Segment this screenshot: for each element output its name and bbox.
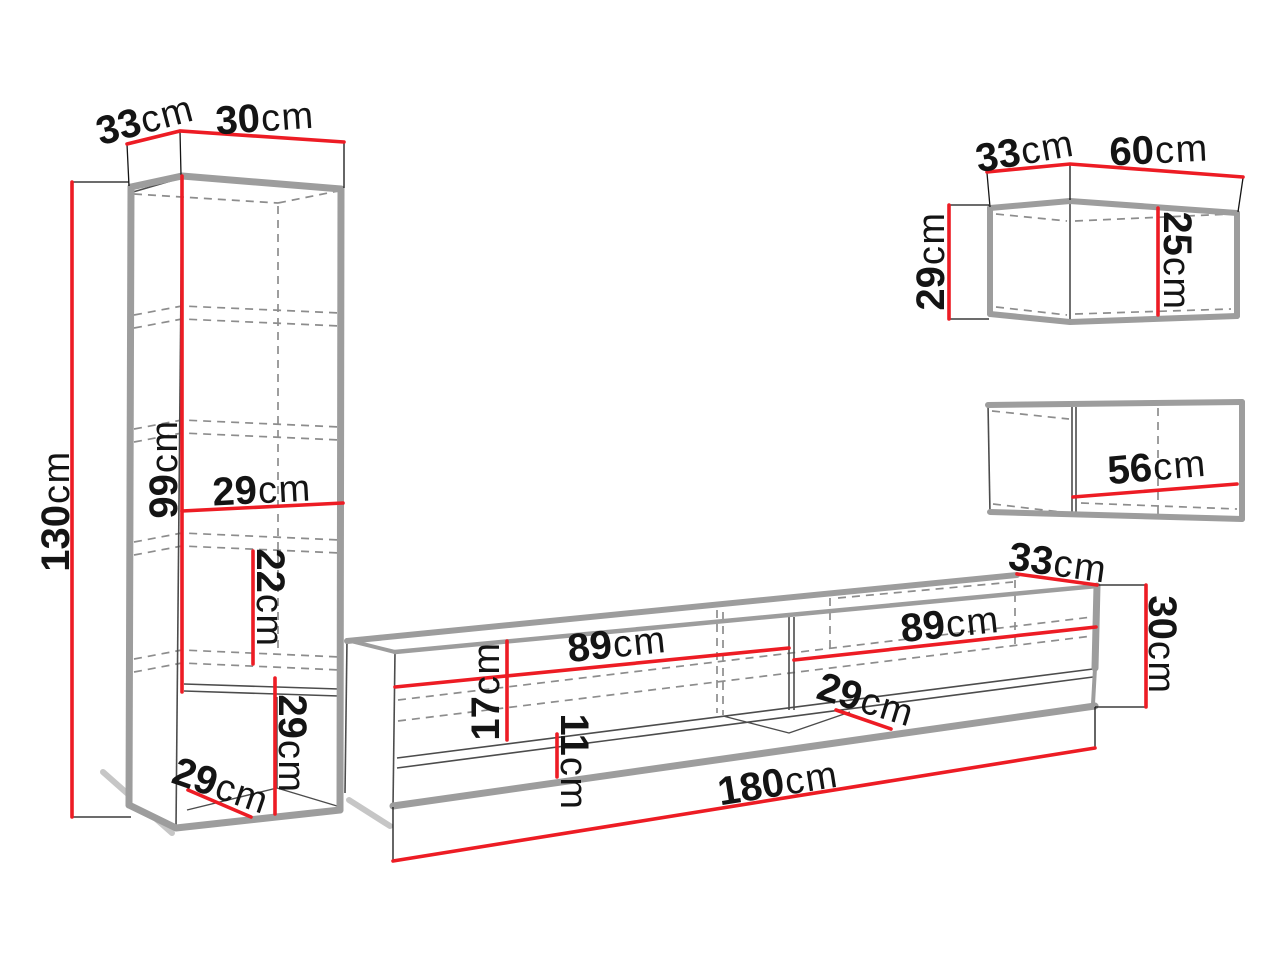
dim-unit: cm <box>466 641 508 695</box>
dim-value: 29 <box>909 266 953 311</box>
dim-unit: cm <box>944 599 1002 646</box>
dim-unit: cm <box>1155 257 1197 311</box>
dim-tall-cabinet-compartment-height-29: 29cm <box>272 694 312 793</box>
dim-unit: cm <box>611 619 669 666</box>
dim-value: 130 <box>34 505 78 572</box>
dim-value: 17 <box>464 696 508 741</box>
dim-value: 60 <box>1108 128 1155 174</box>
dim-unit: cm <box>1151 443 1208 490</box>
dim-tv-stand-height-30: 30cm <box>1142 595 1182 694</box>
dim-value: 99 <box>142 474 186 519</box>
dim-value: 29 <box>270 694 314 739</box>
dim-tall-cabinet-shelf-gap-22: 22cm <box>250 548 290 647</box>
dim-tall-cabinet-height-130: 130cm <box>36 450 76 571</box>
diagram-line-art <box>0 0 1280 960</box>
dim-unit: cm <box>1154 127 1210 172</box>
dim-unit: cm <box>552 757 594 811</box>
dim-unit: cm <box>260 95 316 141</box>
dim-value: 56 <box>1106 446 1154 494</box>
dim-value: 30 <box>214 96 261 143</box>
dim-tv-stand-plinth-height-11: 11cm <box>554 714 594 811</box>
dim-tv-stand-flap-left-89: 89cm <box>566 619 669 669</box>
dim-wall-cabinet-upper-height-29: 29cm <box>911 211 951 310</box>
dim-unit: cm <box>144 419 186 473</box>
dim-value: 30 <box>1140 595 1184 640</box>
dim-tv-stand-front-height-17: 17cm <box>466 641 506 740</box>
dim-unit: cm <box>782 754 842 804</box>
dim-value: 89 <box>565 623 614 671</box>
dim-unit: cm <box>1051 543 1110 592</box>
furniture-dimension-diagram: 33cm 30cm 130cm 99cm 29cm 22cm 29cm 29cm… <box>0 0 1280 960</box>
dim-wall-cabinet-upper-width-60: 60cm <box>1108 127 1209 172</box>
dim-value: 33 <box>972 130 1023 181</box>
dim-unit: cm <box>248 594 290 648</box>
dim-unit: cm <box>1140 641 1182 695</box>
dim-value: 29 <box>211 468 258 514</box>
dim-value: 25 <box>1155 211 1199 256</box>
dim-value: 89 <box>898 603 947 651</box>
dim-unit: cm <box>911 211 953 265</box>
dim-unit: cm <box>270 740 312 794</box>
dim-wall-cabinet-upper-interior-25: 25cm <box>1157 211 1197 310</box>
dim-tall-cabinet-shelf-width-29: 29cm <box>211 467 312 512</box>
dim-wall-cabinet-lower-interior-56: 56cm <box>1106 443 1208 491</box>
dim-value: 11 <box>552 714 596 756</box>
dim-value: 33 <box>1006 534 1056 584</box>
dim-tv-stand-flap-right-89: 89cm <box>899 599 1002 649</box>
dim-value: 22 <box>248 548 292 593</box>
dim-unit: cm <box>36 450 78 504</box>
dim-unit: cm <box>257 467 313 512</box>
dim-tall-cabinet-width-30: 30cm <box>214 95 316 142</box>
dim-tall-cabinet-interior-height-99: 99cm <box>144 419 184 518</box>
